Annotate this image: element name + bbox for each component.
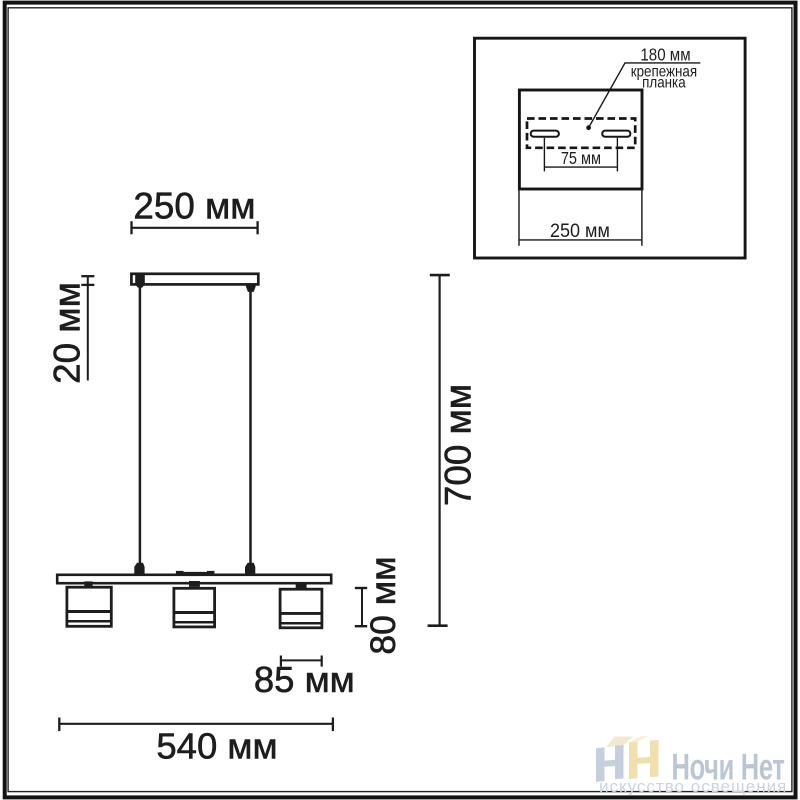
svg-text:80 мм: 80 мм (363, 556, 403, 654)
svg-text:540 мм: 540 мм (156, 726, 277, 767)
svg-text:250 мм: 250 мм (550, 219, 610, 241)
svg-text:180 мм: 180 мм (640, 45, 690, 64)
svg-text:20 мм: 20 мм (47, 282, 88, 384)
svg-text:75 мм: 75 мм (561, 150, 601, 168)
svg-text:планка: планка (642, 74, 686, 91)
svg-text:искусство освещения: искусство освещения (599, 777, 787, 796)
svg-text:700 мм: 700 мм (438, 384, 479, 506)
svg-text:85 мм: 85 мм (254, 659, 355, 700)
svg-text:250 мм: 250 мм (133, 185, 255, 226)
